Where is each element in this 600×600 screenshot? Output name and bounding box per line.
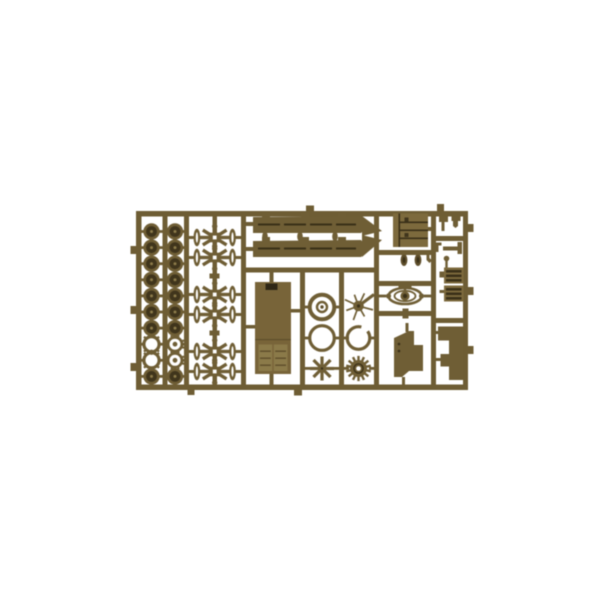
sprue-stub [142, 262, 144, 265]
bogie-side-slit [231, 289, 233, 299]
rail-v7 [339, 268, 344, 391]
product-photo [0, 0, 600, 600]
mount-hub-core [403, 294, 407, 298]
hatch-rib [275, 365, 286, 366]
hatch-opening [266, 284, 278, 291]
sprue-stub [270, 374, 274, 385]
connector-pill [332, 232, 338, 242]
star-hub-dot [321, 367, 323, 369]
bogie-assembly [189, 358, 241, 386]
rail-v3 [184, 211, 189, 390]
sprue-stub [189, 370, 194, 373]
sprue-stub [379, 295, 386, 298]
fender-lug [338, 237, 346, 241]
bogie-side-slit [231, 232, 233, 242]
grille-tab [440, 272, 445, 278]
sprue-stub [189, 293, 194, 296]
wheel-hub [150, 278, 153, 281]
sprue-stub [183, 311, 184, 314]
bogie-hub-hole [213, 370, 217, 374]
sprue-stub [159, 375, 162, 378]
stepped-rear-plate [438, 327, 463, 381]
bogie-knob [212, 323, 217, 328]
gate-tab [131, 363, 137, 371]
bogie-knob [212, 380, 217, 385]
periscope-core [403, 257, 406, 263]
bogie-side-slit [196, 289, 198, 299]
sprue-stub [417, 250, 420, 255]
sprue-stub [424, 295, 431, 298]
road-wheel-solid [167, 223, 184, 239]
gate-tab [468, 287, 474, 295]
engine-deck-plate [393, 214, 431, 248]
road-wheel-solid [142, 288, 163, 304]
gate-tab [294, 390, 302, 396]
sprue-stub [159, 343, 162, 346]
spider-hub-dot [357, 304, 360, 307]
sprue-stub [142, 343, 144, 346]
sprocket-tooth [357, 377, 359, 381]
bogie-assembly [189, 244, 241, 272]
deck-groove [400, 238, 428, 240]
sprue-stub [183, 278, 184, 281]
sprue-stub [406, 323, 409, 332]
gate-bump [210, 331, 220, 336]
bogie-knob [212, 358, 217, 363]
grille-slat [446, 297, 462, 300]
grille-slat [446, 279, 462, 282]
sprue-stub [334, 367, 339, 370]
sprue-stub [236, 370, 242, 373]
wheel-hub [150, 294, 153, 297]
bogie-knob [212, 301, 217, 306]
road-wheel-solid [142, 304, 163, 320]
glacis-bolt [398, 343, 401, 346]
rail-left-edge [136, 211, 142, 390]
sprue-stub [183, 246, 184, 249]
bogie-knob [212, 224, 217, 229]
wheel-hub [150, 246, 153, 249]
connector-pill [262, 232, 268, 242]
fender-groove [284, 248, 306, 250]
road-wheel-solid [167, 272, 184, 288]
hatch-rib [275, 351, 286, 352]
spoked-small-part [345, 293, 374, 320]
bogie-knob [212, 244, 217, 249]
sprue-stub [246, 222, 253, 226]
sprue-stub [369, 337, 374, 340]
sprue-stub [440, 290, 445, 293]
road-wheel-solid [167, 256, 184, 272]
sprue-stub [159, 246, 162, 249]
gate-tab [188, 390, 195, 395]
sprue-stub [236, 293, 242, 296]
rail-v8 [374, 211, 379, 390]
sprue-stub [159, 295, 162, 298]
sprue-stub [183, 375, 184, 378]
sprue-stub [183, 230, 184, 233]
sprue-stub [344, 337, 349, 340]
rail-v9 [431, 211, 436, 390]
fender-groove [258, 224, 280, 226]
sprue-stub [236, 350, 242, 353]
small-clip [452, 217, 461, 229]
fender-groove [336, 248, 356, 250]
sprue-stub [142, 246, 144, 249]
fender-groove [310, 248, 332, 250]
grille-slat [446, 270, 462, 273]
wheel-hub [174, 311, 177, 314]
sprue-stub [142, 375, 144, 378]
sprue-stub [246, 325, 255, 329]
ball-pin [444, 256, 450, 262]
sprue-stub [305, 306, 310, 309]
rail-rightcol-lower [436, 318, 463, 323]
sprue-stub [159, 262, 162, 265]
road-wheel-toothed [166, 335, 185, 354]
rail-mid-fenderbox [241, 268, 379, 273]
wheel-hub [173, 342, 178, 347]
bogie-knob [212, 281, 217, 286]
glacis-hull-plate [394, 331, 423, 377]
sprue-stub [246, 247, 253, 251]
sprue-stub [436, 358, 441, 361]
road-wheel-solid [167, 320, 184, 336]
road-wheel-solid [142, 239, 163, 255]
gate-tab [468, 224, 474, 232]
road-wheel-solid [167, 368, 184, 384]
sprue-stub [159, 311, 162, 314]
wheel-hub [174, 246, 177, 249]
sprue-stub [334, 306, 339, 309]
gate-bump [403, 309, 409, 319]
sprue-stub [142, 230, 144, 233]
wheel-hub [174, 262, 177, 265]
deck-groove [400, 222, 428, 224]
sprue-stub [183, 327, 184, 330]
hatch-rib [275, 358, 286, 359]
road-wheel-solid [142, 256, 163, 272]
sprue-stub [305, 337, 310, 340]
wheel-hub [174, 375, 177, 378]
fender-parts [246, 213, 382, 257]
bogie-side-slit [196, 346, 198, 356]
bogie-side-slit [231, 366, 233, 376]
glacis-bolt [398, 350, 401, 353]
sprue-stub [189, 313, 194, 316]
sprue-stub [270, 273, 274, 283]
wheel-parts-column-2 [344, 293, 374, 381]
lever-bar [443, 247, 460, 251]
grille-slat [446, 293, 462, 296]
grille-slat [446, 275, 462, 278]
wheel-hub [150, 375, 153, 378]
bogie-knob [212, 266, 217, 271]
rail-right-edge [463, 211, 468, 390]
spoked-idler-star [310, 357, 334, 381]
mount-handle-bar [399, 286, 412, 288]
wheel-hub [150, 311, 153, 314]
mount-side-knob [419, 293, 424, 298]
sprue-stub [159, 359, 162, 362]
sprue-stub [142, 295, 144, 298]
bogie-side-slit [231, 309, 233, 319]
connector-pill [297, 232, 303, 242]
fender-lug [301, 213, 309, 217]
sprue-stub [142, 278, 144, 281]
rail-v5 [241, 211, 246, 390]
sprue-stub [402, 377, 405, 385]
bogie-column [189, 224, 241, 386]
wheel-ring [144, 337, 159, 352]
sprue-stub [189, 350, 194, 353]
bogie-side-slit [196, 366, 198, 376]
gate-tab [131, 246, 137, 254]
right-column-parts [433, 217, 464, 381]
plain-ring-wheel [310, 326, 335, 351]
periscope-core [417, 257, 420, 263]
sprue-stub [189, 236, 194, 239]
sprue-stub [236, 256, 242, 259]
rail-v6 [300, 268, 305, 391]
ball-pin-shaft [445, 261, 447, 268]
road-wheel-solid [167, 239, 184, 255]
road-wheel-toothed [166, 351, 185, 370]
road-wheel-solid [142, 368, 163, 384]
gate-tab [468, 346, 474, 354]
bogie-assembly [189, 301, 241, 329]
mount-side-knob [386, 293, 391, 298]
sprocket-hole [356, 366, 361, 371]
wheel-parts-column-1 [305, 295, 339, 381]
sprue-stub [183, 295, 184, 298]
road-wheel-solid [167, 304, 184, 320]
fender-lug [262, 213, 270, 217]
fender-groove [336, 224, 356, 226]
bogie-knob [212, 338, 217, 343]
wheel-hub [174, 230, 177, 233]
wheel-hub [173, 358, 178, 363]
sprue-photo [0, 0, 600, 600]
sprue-stub [142, 359, 144, 362]
bogie-hub-hole [213, 313, 217, 317]
bogie-side-slit [196, 252, 198, 262]
bogie-side-slit [196, 232, 198, 242]
gate-tab [131, 306, 137, 314]
lever-end-tab [458, 242, 463, 254]
bogie-hub-hole [213, 236, 217, 240]
sprue-stub [433, 331, 438, 334]
road-wheel-open [141, 350, 163, 371]
wheel-hub [174, 294, 177, 297]
sprue-stub [428, 227, 431, 231]
deck-groove [400, 230, 428, 232]
sprue-stub [403, 250, 406, 255]
rail-rightcol-upper [436, 236, 463, 241]
sprue-stub [159, 327, 162, 330]
wheel-hub [150, 327, 153, 330]
sprue-stub [159, 230, 162, 233]
wheel-tick [150, 350, 152, 353]
sprue-stub [305, 367, 310, 370]
wheel-hub [150, 262, 153, 265]
sprue-stub [183, 343, 184, 346]
wheel-ring [144, 353, 159, 368]
panel-line [255, 339, 291, 340]
hatch-rib [260, 365, 271, 366]
sprue-stub [291, 309, 300, 313]
fender-groove [284, 224, 306, 226]
sprue-stub [334, 337, 339, 340]
sprue-stub [189, 256, 194, 259]
deck-divider [399, 214, 401, 248]
road-wheel-solid [167, 288, 184, 304]
sprue-stub [344, 367, 349, 370]
gate-bump [210, 274, 220, 279]
gate-tab [306, 206, 314, 212]
bogie-side-slit [231, 252, 233, 262]
bogie-hub-hole [213, 293, 217, 297]
deck-bolt [405, 218, 409, 222]
glacis-plate [394, 323, 423, 385]
wheel-hub [174, 278, 177, 281]
sprue-stub [142, 327, 144, 330]
bogie-side-slit [231, 346, 233, 356]
toothed-sprocket-disc [346, 356, 371, 381]
road-wheel-solid [142, 223, 163, 239]
fender-groove [310, 224, 332, 226]
sprue-stub [183, 262, 184, 265]
wheel-hub [150, 230, 153, 233]
deck-bolt [405, 233, 409, 237]
fender-groove [258, 248, 280, 250]
sprue-stub [142, 311, 144, 314]
sprocket-hub-dot [320, 305, 323, 308]
bogie-side-slit [196, 309, 198, 319]
superstructure-part [246, 273, 300, 385]
grille-slat [446, 288, 462, 291]
hatch-rib [260, 351, 271, 352]
sprue-stub [236, 313, 242, 316]
fender-lug [338, 213, 346, 217]
gate-tab [437, 204, 444, 212]
bogie-hub-hole [213, 256, 217, 260]
road-wheel-solid [142, 272, 163, 288]
t-pin-bar [433, 243, 442, 246]
hatch-rib [260, 358, 271, 359]
small-clip [439, 217, 448, 232]
bogie-hub-hole [213, 350, 217, 354]
sprue-stub [159, 278, 162, 281]
sprue-stub [183, 359, 184, 362]
wheel-hub [174, 327, 177, 330]
wheel-tick [150, 334, 152, 337]
sprocket-tooth [357, 356, 359, 360]
sprue-stub [236, 236, 242, 239]
sprue-stub [369, 367, 374, 370]
